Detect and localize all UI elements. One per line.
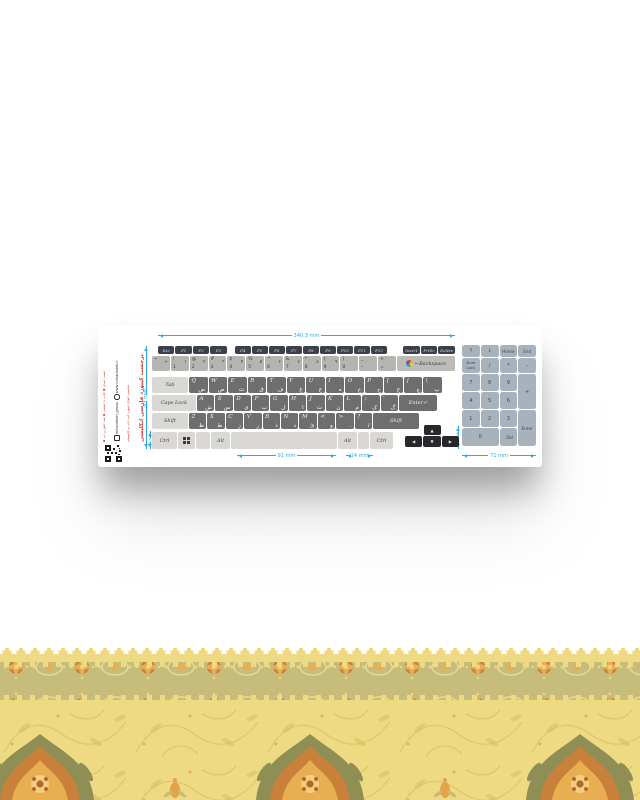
product-image-card[interactable]: ▪ نصب آسان ▪ چاپ با کیفیت ▪ ضد خش و آب m… — [98, 326, 542, 467]
fn-group-left: EscF1F2F3 — [158, 346, 227, 354]
letter-row-a: Caps LockAشSسDیFبGلHاJتKنLم;ک'گEnter↵ — [152, 395, 437, 411]
key-w: Wص — [209, 377, 228, 393]
key-f3: F3 — [210, 346, 226, 354]
key-alt-right: Alt — [338, 432, 357, 449]
dim-alt-key: 14 mm — [346, 452, 373, 459]
keyboard-sticker-layout: EscF1F2F3 F4F5F6F7F8F9F10F11F12 InsertPr… — [152, 346, 459, 450]
key-ctrl-right: Ctrl — [370, 432, 393, 449]
key-f1: F1 — [175, 346, 191, 354]
key-f: Fب — [252, 395, 269, 411]
dim-numpad-width: 71 mm — [462, 452, 536, 459]
numpad-key-6: 6 — [500, 392, 518, 409]
key-r: Rق — [248, 377, 267, 393]
key-4: $4۴ — [227, 356, 245, 371]
key-t: Tف — [267, 377, 286, 393]
key-a: Aش — [197, 395, 214, 411]
numpad-key-+: + — [518, 374, 536, 409]
dim-spacebar-label: 91 mm — [278, 453, 296, 459]
key-f4: F4 — [235, 346, 251, 354]
key-tilde: ~÷ — [152, 356, 170, 371]
key-9: (9۹ — [322, 356, 340, 371]
key-h: Hا — [289, 395, 306, 411]
numpad-key-7: 7 — [462, 374, 480, 391]
key-f9: F9 — [320, 346, 336, 354]
dim-numpad-width-label: 71 mm — [490, 453, 508, 459]
key-enter: Enter↵ — [399, 395, 437, 411]
key-]: ]چ — [404, 377, 423, 393]
numpad-key-*: * — [500, 358, 518, 373]
key-f6: F6 — [269, 346, 285, 354]
dim-alt-key-label: 14 mm — [351, 453, 369, 459]
key-b: Bذ — [263, 413, 280, 429]
key-arrow-right: ▶ — [442, 436, 459, 447]
key-delete: Delete — [438, 346, 455, 354]
key-[: [ج — [384, 377, 403, 393]
page: ▪ نصب آسان ▪ چاپ با کیفیت ▪ ضد خش و آب m… — [0, 0, 640, 800]
number-row: ~÷!1۱@2۲#3۳$4۴%5۵^6۶&7۷*8۸(9۹)0۰_-+=←Bac… — [152, 356, 455, 371]
key-p: Pح — [365, 377, 384, 393]
dim-spacebar: 91 mm — [237, 452, 336, 459]
key-g: Gل — [270, 395, 287, 411]
numpad-key-.-del: . Del — [500, 428, 518, 446]
key-q: Qض — [189, 377, 208, 393]
numpad-key--: - — [518, 358, 536, 373]
key-;: ;ک — [362, 395, 379, 411]
brand-features-text: ▪ نصب آسان ▪ چاپ با کیفیت ▪ ضد خش و آب — [103, 330, 107, 442]
key-e: Eث — [228, 377, 247, 393]
key-s: Sس — [215, 395, 232, 411]
brand-logo-icon — [406, 360, 413, 367]
numpad-key-↑: ↑ — [462, 345, 480, 357]
ornament-pattern — [0, 648, 640, 800]
brand-note-text: مناسب انواع کیبورد لپ تاپ و کامپیوتر — [127, 330, 131, 442]
numpad-key-3: 3 — [500, 410, 518, 427]
brand-social-line: mihanlabel_group www.mihanlabel.ir — [114, 330, 120, 442]
brand-instagram-handle: mihanlabel_group — [115, 402, 119, 434]
key-x: Xط — [207, 413, 224, 429]
key-arrow-left: ◀ — [405, 436, 422, 447]
bottom-modifier-row: CtrlAltAltCtrl — [152, 432, 393, 449]
arrow-left-icon: ◀ — [412, 439, 415, 444]
key-spacebar — [231, 432, 337, 449]
key-f12: F12 — [371, 346, 387, 354]
brand-strip: ▪ نصب آسان ▪ چاپ با کیفیت ▪ ضد خش و آب m… — [103, 329, 145, 464]
numpad-key-↓: ↓ — [481, 345, 499, 357]
numpad-key-home: Home — [500, 345, 518, 357]
numpad-key-9: 9 — [500, 374, 518, 391]
key-v: Vر — [244, 413, 261, 429]
key-1: !1۱ — [171, 356, 189, 371]
key->: >. — [336, 413, 353, 429]
key-win — [178, 432, 195, 449]
key-insert: Insert — [403, 346, 420, 354]
key-l: Lم — [344, 395, 361, 411]
key-f10: F10 — [337, 346, 353, 354]
dim-total-width-label: 340.3 mm — [294, 333, 320, 339]
numpad-key-end: End — [518, 345, 536, 357]
brand-rotated-content: ▪ نصب آسان ▪ چاپ با کیفیت ▪ ضد خش و آب m… — [103, 329, 145, 463]
key-d: Dی — [234, 395, 251, 411]
key-o: Oخ — [345, 377, 364, 393]
key-esc: Esc — [158, 346, 174, 354]
key-j: Jت — [307, 395, 324, 411]
numpad-key-5: 5 — [481, 392, 499, 409]
arrow-down-icon: ▼ — [430, 439, 433, 444]
brand-website: www.mihanlabel.ir — [115, 360, 119, 393]
numpad-key-num-lock: NumLock — [462, 358, 480, 373]
key-u: Uع — [306, 377, 325, 393]
arrow-right-icon: ▶ — [449, 439, 452, 444]
key-capslock: Caps Lock — [152, 395, 196, 411]
function-key-row: EscF1F2F3 F4F5F6F7F8F9F10F11F12 InsertPr… — [152, 346, 455, 354]
key-blank-left — [196, 432, 210, 449]
key-3: #3۳ — [209, 356, 227, 371]
key-arrow-up: ▲ — [424, 425, 441, 435]
key-f8: F8 — [303, 346, 319, 354]
instagram-icon — [114, 436, 120, 442]
numpad-key-1: 1 — [462, 410, 480, 427]
key-m: Mئ — [299, 413, 316, 429]
numpad-key-4: 4 — [462, 392, 480, 409]
key-5: %5۵ — [246, 356, 264, 371]
letter-row-q: TabQضWصEثRقTفYغUعIهOخPح[ج]چ\پ — [152, 377, 442, 393]
numpad-sticker-block: ↑↓HomeEndNumLock/*-789+456123Enter0. Del — [462, 345, 536, 448]
key-f2: F2 — [193, 346, 209, 354]
key--: _- — [359, 356, 377, 371]
key-f5: F5 — [252, 346, 268, 354]
ornament-border — [0, 648, 640, 800]
key-7: &7۷ — [284, 356, 302, 371]
key-tab: Tab — [152, 377, 188, 393]
numpad-key-2: 2 — [481, 410, 499, 427]
key-prtsc: PrtSc — [421, 346, 438, 354]
key-y: Yغ — [287, 377, 306, 393]
key-c: Cز — [226, 413, 243, 429]
key-<: <و — [318, 413, 335, 429]
key-2: @2۲ — [190, 356, 208, 371]
numpad-key-8: 8 — [481, 374, 499, 391]
key-': 'گ — [381, 395, 398, 411]
windows-logo-icon — [183, 437, 190, 444]
numpad-key-0: 0 — [462, 428, 499, 446]
key-0: )0۰ — [340, 356, 358, 371]
key-k: Kن — [326, 395, 343, 411]
fn-group-mid: F4F5F6F7F8F9F10F11F12 — [235, 346, 387, 354]
qr-code-icon — [105, 445, 122, 462]
arrow-up-icon: ▲ — [430, 428, 433, 433]
arrow-keys-cluster: ▲ ◀ ▼ ▶ — [405, 425, 459, 447]
key-z: Zظ — [189, 413, 206, 429]
key-\: \پ — [423, 377, 442, 393]
key-arrow-down: ▼ — [423, 436, 440, 447]
key-f11: F11 — [354, 346, 370, 354]
key-?: ?/ — [355, 413, 372, 429]
globe-icon — [114, 395, 120, 401]
numpad-key-enter: Enter — [518, 410, 536, 446]
key-n: Nد — [281, 413, 298, 429]
key-i: Iه — [326, 377, 345, 393]
key-f7: F7 — [286, 346, 302, 354]
key-8: *8۸ — [303, 356, 321, 371]
letter-row-z: ShiftZظXطCزVرBذNدMئ<و>.?/Shift — [152, 413, 419, 429]
key-blank-right — [358, 432, 369, 449]
key-shift-left: Shift — [152, 413, 188, 429]
numpad-key-/: / — [481, 358, 499, 373]
key-alt-left: Alt — [211, 432, 230, 449]
fn-group-nav: InsertPrtScDelete — [403, 346, 455, 354]
key-backspace: ←Backspace — [397, 356, 455, 371]
key-=: += — [378, 356, 396, 371]
dim-total-width: 340.3 mm — [158, 332, 455, 339]
key-6: ^6۶ — [265, 356, 283, 371]
key-ctrl-left: Ctrl — [152, 432, 177, 449]
